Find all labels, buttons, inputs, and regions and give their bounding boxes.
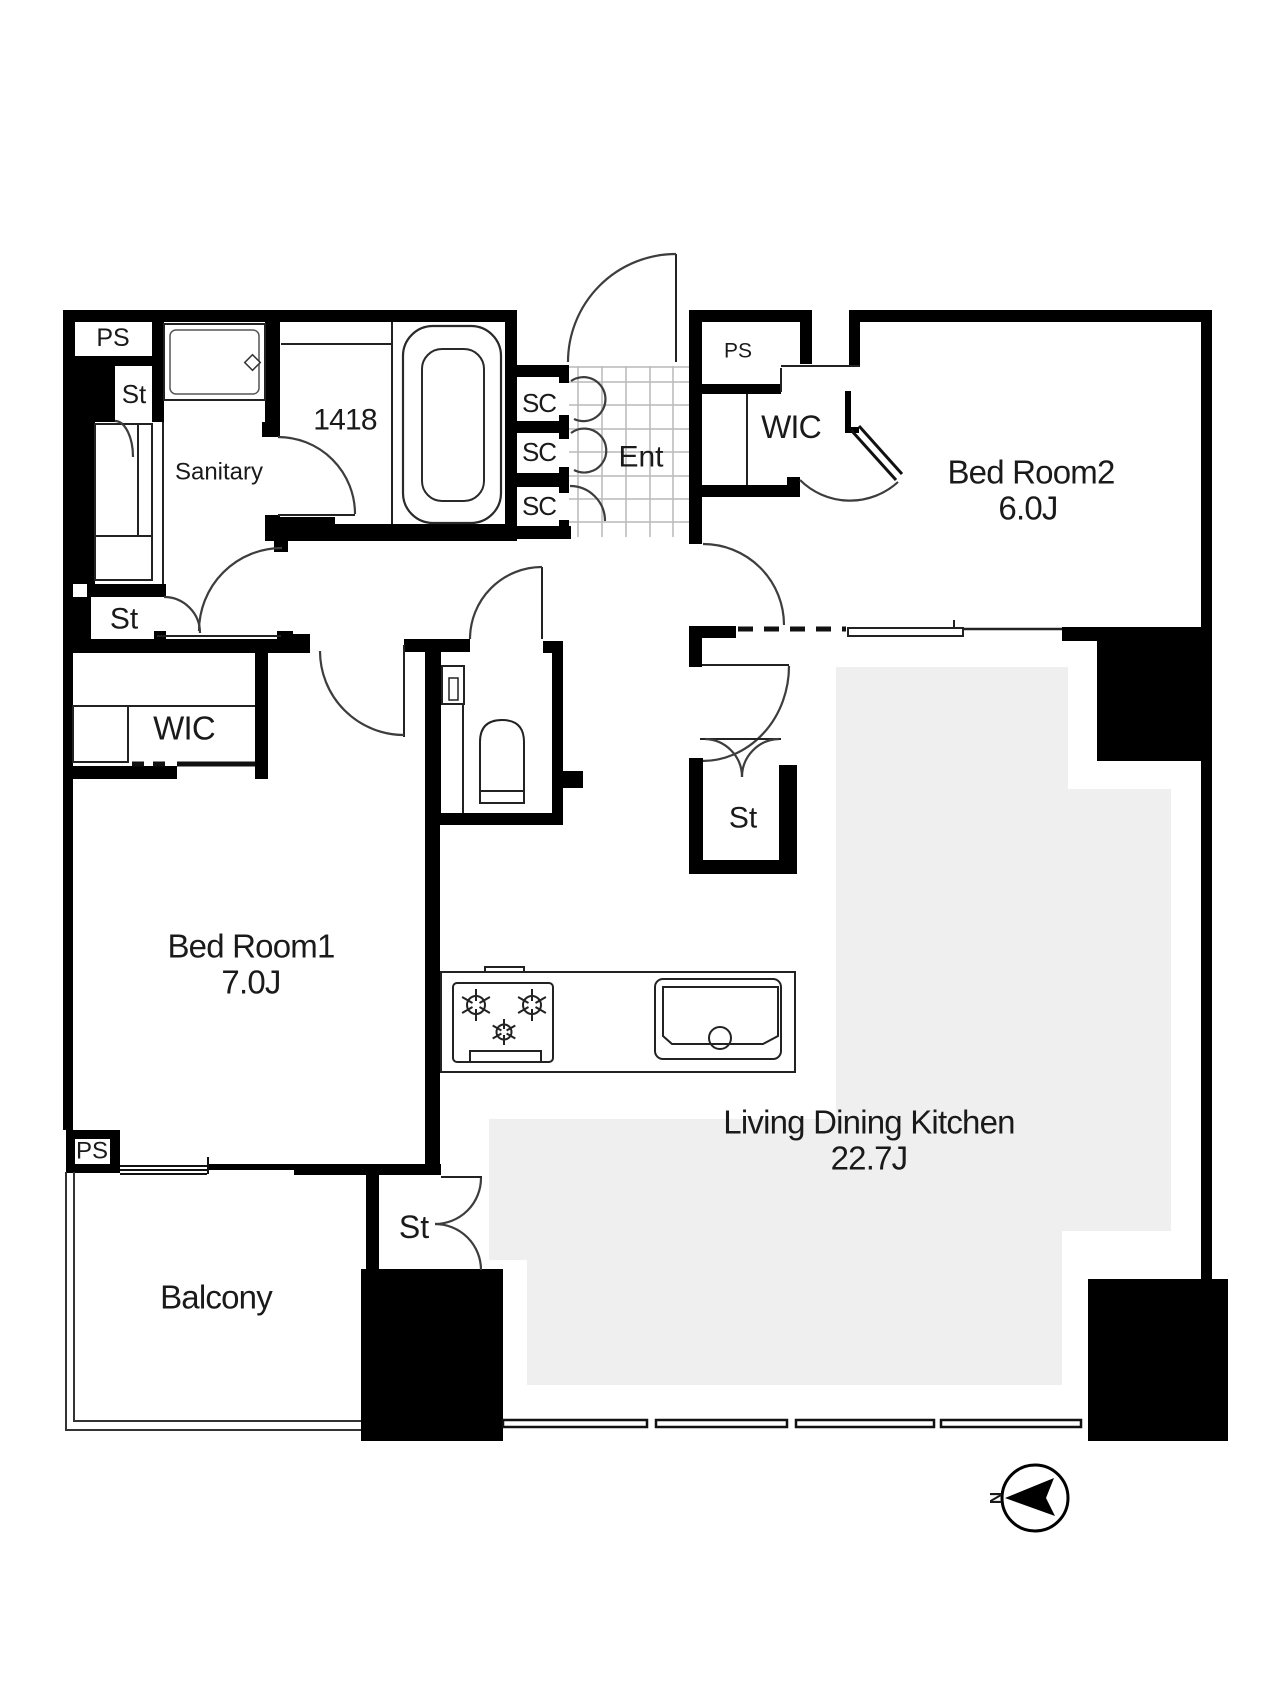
svg-text:1418: 1418	[313, 404, 377, 437]
svg-text:SC: SC	[522, 491, 556, 521]
svg-text:6.0J: 6.0J	[998, 490, 1057, 527]
svg-text:PS: PS	[96, 324, 129, 352]
svg-text:SC: SC	[522, 437, 556, 467]
svg-text:WIC: WIC	[153, 710, 215, 747]
svg-text:Bed Room1: Bed Room1	[167, 928, 334, 965]
svg-text:Living Dining Kitchen: Living Dining Kitchen	[723, 1104, 1014, 1141]
svg-text:St: St	[122, 379, 147, 409]
svg-text:Balcony: Balcony	[160, 1279, 273, 1316]
svg-text:PS: PS	[724, 340, 752, 363]
svg-text:Sanitary: Sanitary	[175, 459, 263, 486]
svg-text:Ent: Ent	[618, 441, 664, 474]
svg-text:22.7J: 22.7J	[831, 1140, 908, 1177]
svg-text:PS: PS	[76, 1138, 108, 1165]
svg-text:N: N	[987, 1492, 1006, 1504]
svg-text:St: St	[729, 802, 758, 835]
svg-text:Bed Room2: Bed Room2	[947, 454, 1114, 491]
svg-text:WIC: WIC	[761, 409, 821, 445]
svg-text:SC: SC	[522, 388, 556, 418]
svg-text:St: St	[399, 1209, 429, 1245]
svg-text:7.0J: 7.0J	[221, 964, 280, 1001]
svg-text:St: St	[110, 603, 139, 636]
